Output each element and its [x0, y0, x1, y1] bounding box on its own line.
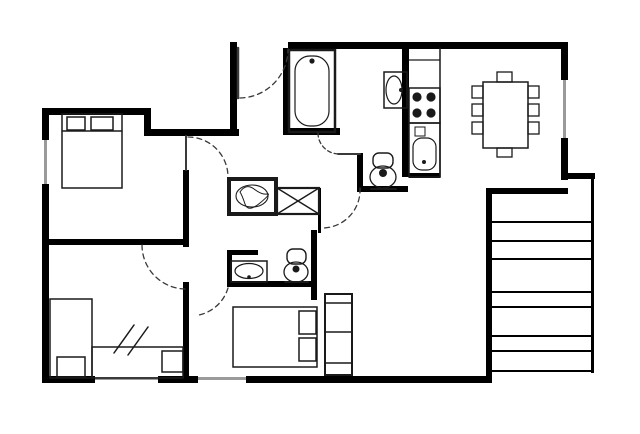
wall-bottom-3: [246, 376, 492, 383]
sink-drain-dot: [422, 160, 426, 164]
floor-plan-canvas: [0, 0, 640, 434]
stove-burner: [426, 108, 435, 117]
stove-burner: [426, 92, 435, 101]
bathtub-drain-dot: [309, 58, 314, 63]
wall-top: [288, 42, 568, 49]
wall-left-lower: [42, 184, 49, 383]
wall-kitchen: [402, 48, 409, 177]
stove-burner: [412, 92, 421, 101]
stove-burner: [412, 108, 421, 117]
wall-bathroom2-right: [311, 230, 317, 300]
wall-stairs-notch-top: [561, 173, 595, 179]
window-left: [44, 140, 47, 184]
wall-hall-top: [144, 129, 239, 136]
wall-stairs-left: [486, 190, 492, 383]
wall-bedroom-divider: [42, 239, 189, 245]
wall-right-upper: [561, 42, 568, 80]
window-bottom-2: [198, 377, 246, 380]
window-right: [563, 80, 566, 138]
toilet-2-dot: [293, 266, 300, 273]
toilet-1-dot: [379, 169, 387, 177]
washbasin-2-drain-dot: [247, 275, 251, 279]
wall-bedroom3-left: [183, 282, 189, 383]
washbasin-1-tap-dot: [399, 88, 403, 92]
wall-entry-vertical: [230, 42, 237, 135]
wall-stairs-top: [486, 188, 568, 194]
wall-stairs-right-edge: [591, 175, 594, 373]
wall-bedroom1-right: [183, 170, 189, 247]
wall-left-upper: [42, 108, 49, 140]
wall-bottom-2: [158, 376, 198, 383]
floor-plan-page: [0, 0, 640, 434]
